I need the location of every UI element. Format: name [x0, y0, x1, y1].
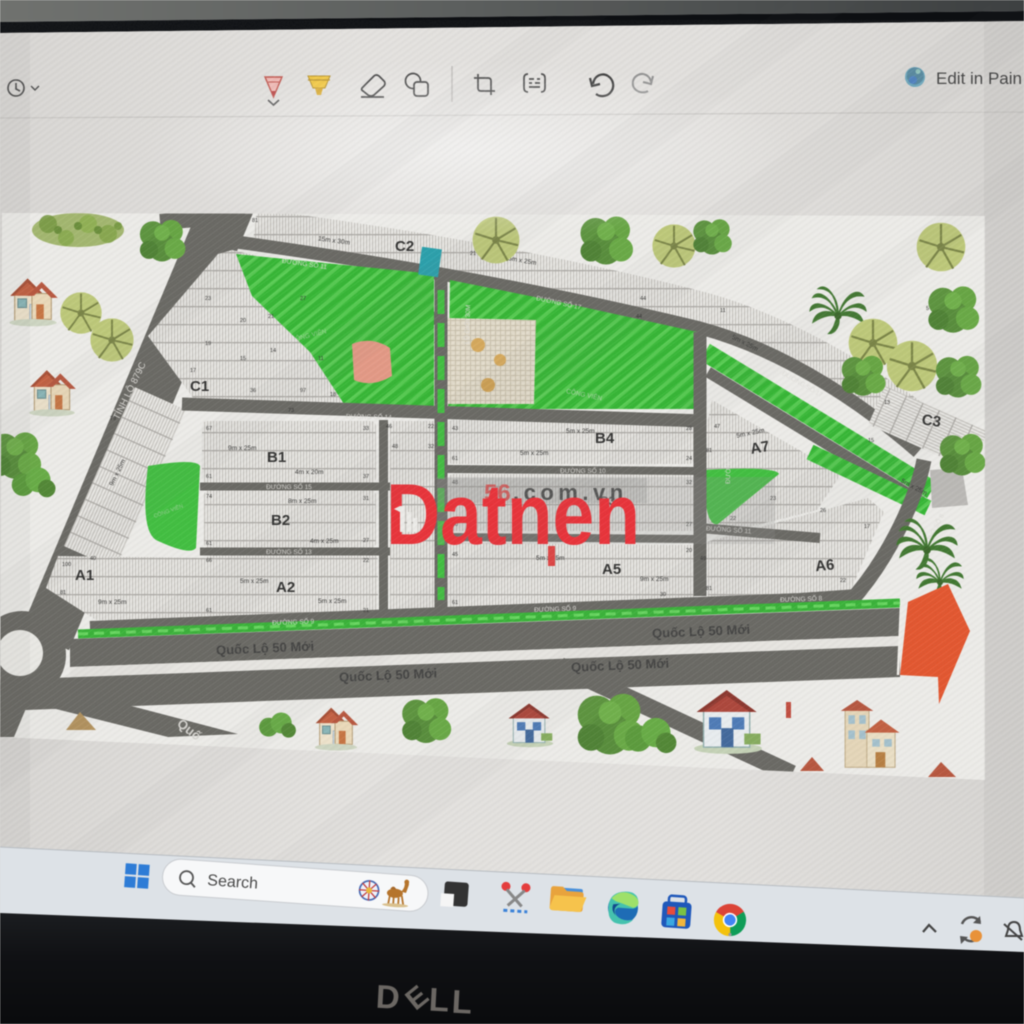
svg-text:Search: Search: [207, 872, 259, 892]
svg-text:D: D: [375, 978, 401, 1016]
svg-text:L: L: [451, 983, 473, 1021]
svg-text:L: L: [428, 980, 450, 1018]
